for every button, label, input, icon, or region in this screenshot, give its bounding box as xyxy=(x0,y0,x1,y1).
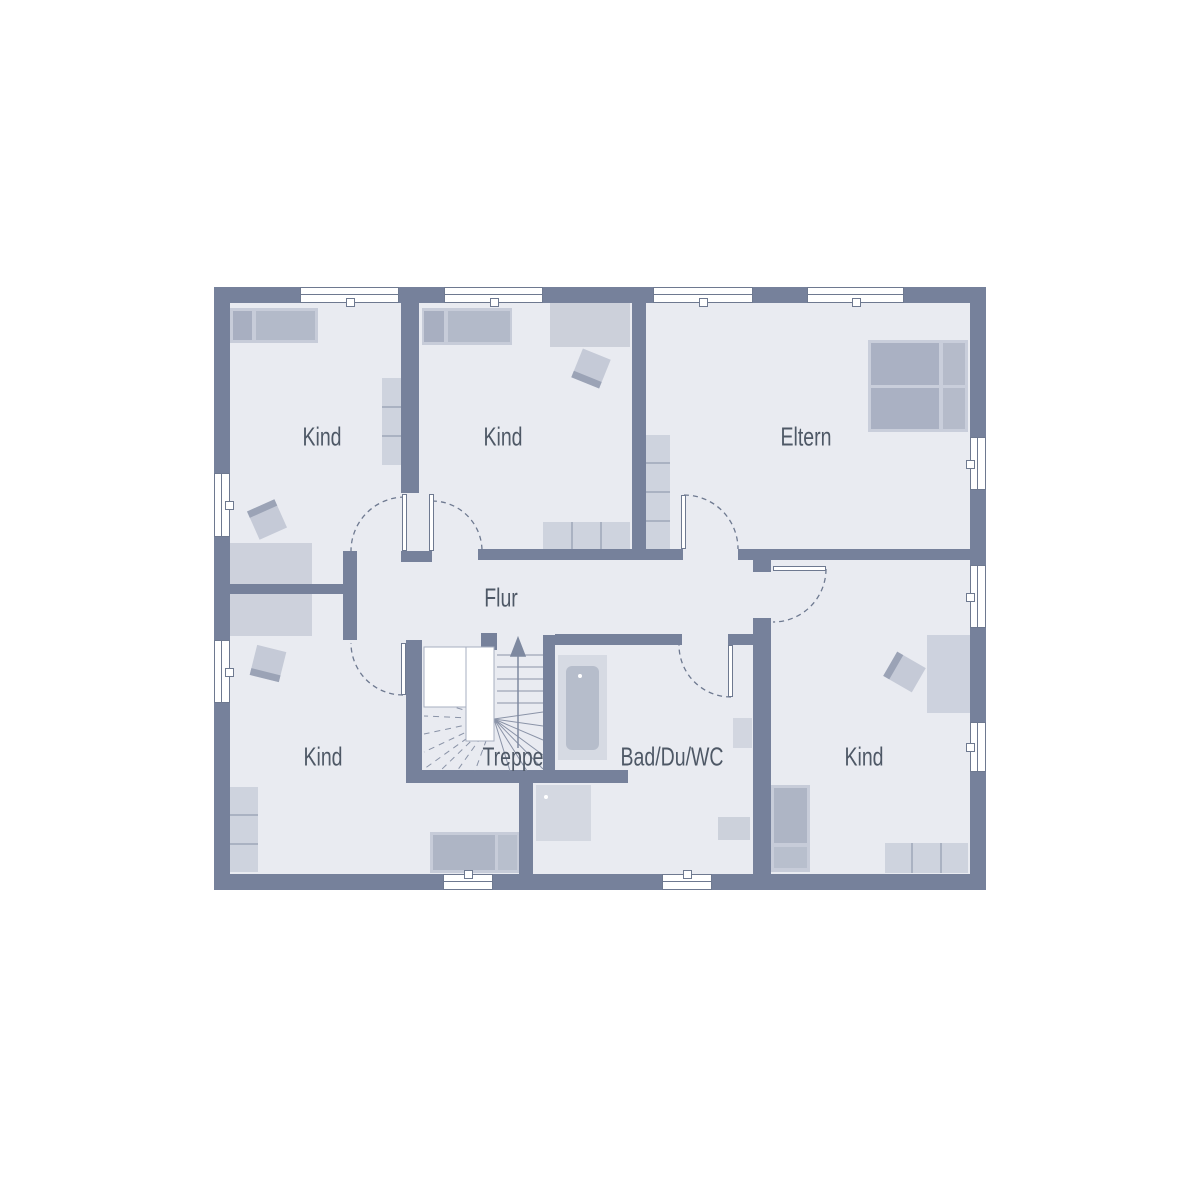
window-icon xyxy=(300,287,399,303)
door-leaf xyxy=(773,566,826,571)
wall-bad-kind4-divider xyxy=(753,618,771,874)
bathtub-drain xyxy=(578,674,582,678)
bed-duvet xyxy=(448,311,510,342)
wall-bad-door-jamb xyxy=(728,634,753,645)
wardrobe xyxy=(230,787,258,872)
room-label-eltern: Eltern xyxy=(781,422,832,453)
toilet xyxy=(733,718,752,748)
door-leaf xyxy=(728,645,733,697)
bed-pillow xyxy=(424,311,444,342)
bed xyxy=(230,308,318,343)
wall-kind1-kind2 xyxy=(401,303,419,493)
wardrobe xyxy=(646,435,670,549)
bathtub-basin xyxy=(566,666,599,750)
floor-plan: Kind Kind Eltern Flur Kind Treppe Bad/Du… xyxy=(0,0,1200,1200)
shower xyxy=(536,785,591,841)
bathtub xyxy=(558,655,607,760)
dresser xyxy=(543,522,630,552)
bed xyxy=(771,785,810,872)
wall-stairs-top-nub xyxy=(481,633,497,650)
double-bed xyxy=(868,340,968,432)
window-icon xyxy=(214,640,230,703)
bed-pillow xyxy=(943,343,965,385)
wall-kind4-door-nub xyxy=(753,560,771,572)
wall-bad-north xyxy=(555,634,682,645)
bed-duvet xyxy=(256,311,315,340)
wardrobe xyxy=(550,303,630,347)
window-icon xyxy=(444,287,543,303)
sideboard xyxy=(885,843,968,873)
bed-duvet xyxy=(433,835,495,870)
window-icon xyxy=(807,287,904,303)
bed-duvet xyxy=(871,343,939,385)
window-icon xyxy=(970,722,986,772)
window-icon xyxy=(653,287,753,303)
room-label-treppe: Treppe xyxy=(482,742,543,773)
window-icon xyxy=(443,874,493,890)
room-label-kind-top-left: Kind xyxy=(302,422,341,453)
window-icon xyxy=(662,874,712,890)
wall-flur-north-right xyxy=(738,549,970,560)
wall-kind1-kind3-shared xyxy=(214,584,344,594)
bed-duvet xyxy=(871,388,939,429)
room-label-bad-du-wc: Bad/Du/WC xyxy=(621,742,724,773)
door-leaf xyxy=(401,643,406,695)
bed-pillow xyxy=(498,835,517,870)
shower-drain xyxy=(544,795,548,799)
window-icon xyxy=(970,437,986,490)
room-label-kind-bottom-right: Kind xyxy=(844,742,883,773)
shelf xyxy=(382,378,401,465)
wall-flur-west-connector xyxy=(343,551,357,640)
desk xyxy=(230,594,312,636)
door-leaf xyxy=(681,495,686,549)
room-label-kind-top-middle: Kind xyxy=(483,422,522,453)
window-icon xyxy=(970,565,986,628)
bed-pillow xyxy=(943,388,965,429)
wall-flur-north-left xyxy=(478,549,683,560)
door-leaf xyxy=(402,494,407,551)
room-label-flur: Flur xyxy=(484,583,518,614)
bed-pillow xyxy=(774,847,807,868)
bed xyxy=(422,308,512,345)
desk xyxy=(927,635,970,713)
wall-eltern-west xyxy=(632,303,646,560)
room-label-kind-bottom-left: Kind xyxy=(303,742,342,773)
washbasin xyxy=(718,817,750,840)
bed xyxy=(430,832,520,873)
bed-duvet xyxy=(774,788,807,843)
wall-shower-west xyxy=(519,770,533,874)
window-icon xyxy=(214,473,230,537)
wall-door-stub xyxy=(401,551,432,562)
wall-stairs-west xyxy=(406,640,422,772)
door-leaf xyxy=(429,494,434,551)
desk xyxy=(230,543,312,584)
bed-pillow xyxy=(233,311,252,340)
wall-stairs-east xyxy=(543,635,555,772)
